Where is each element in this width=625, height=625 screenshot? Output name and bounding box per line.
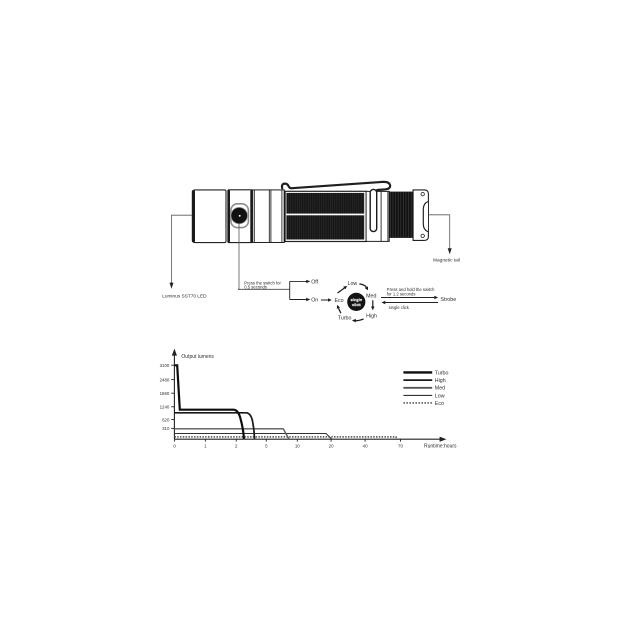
- svg-text:70: 70: [398, 443, 403, 448]
- svg-text:310: 310: [162, 426, 170, 431]
- svg-text:Output lumens: Output lumens: [181, 354, 214, 360]
- svg-text:1240: 1240: [160, 405, 170, 410]
- svg-text:Runtime:hours: Runtime:hours: [424, 444, 457, 450]
- svg-text:Med: Med: [435, 386, 445, 392]
- svg-text:Turbo: Turbo: [435, 370, 449, 376]
- svg-text:Magnetic tail: Magnetic tail: [433, 257, 460, 263]
- svg-text:40: 40: [363, 443, 368, 448]
- svg-text:Low: Low: [348, 281, 358, 287]
- svg-text:High: High: [366, 313, 377, 319]
- svg-text:click: click: [352, 302, 362, 307]
- svg-text:Off: Off: [311, 279, 318, 285]
- svg-text:Turbo: Turbo: [338, 316, 352, 322]
- svg-text:On: On: [311, 297, 318, 303]
- svg-text:20: 20: [329, 443, 334, 448]
- svg-text:Eco: Eco: [335, 298, 344, 304]
- svg-text:2480: 2480: [160, 377, 170, 382]
- svg-text:Med: Med: [366, 294, 376, 300]
- svg-text:High: High: [435, 378, 446, 384]
- svg-text:Strobe: Strobe: [440, 297, 456, 303]
- svg-text:620: 620: [162, 417, 170, 422]
- svg-text:Luminus SST70 LED: Luminus SST70 LED: [162, 293, 207, 299]
- svg-text:for 1.2 seconds: for 1.2 seconds: [387, 292, 416, 297]
- svg-text:Low: Low: [435, 393, 445, 399]
- svg-text:Eco: Eco: [435, 401, 444, 407]
- svg-text:0.5 seconds: 0.5 seconds: [244, 285, 267, 290]
- svg-text:1860: 1860: [160, 391, 170, 396]
- svg-text:single click: single click: [389, 305, 410, 310]
- svg-text:10: 10: [295, 443, 300, 448]
- svg-text:3100: 3100: [160, 363, 170, 368]
